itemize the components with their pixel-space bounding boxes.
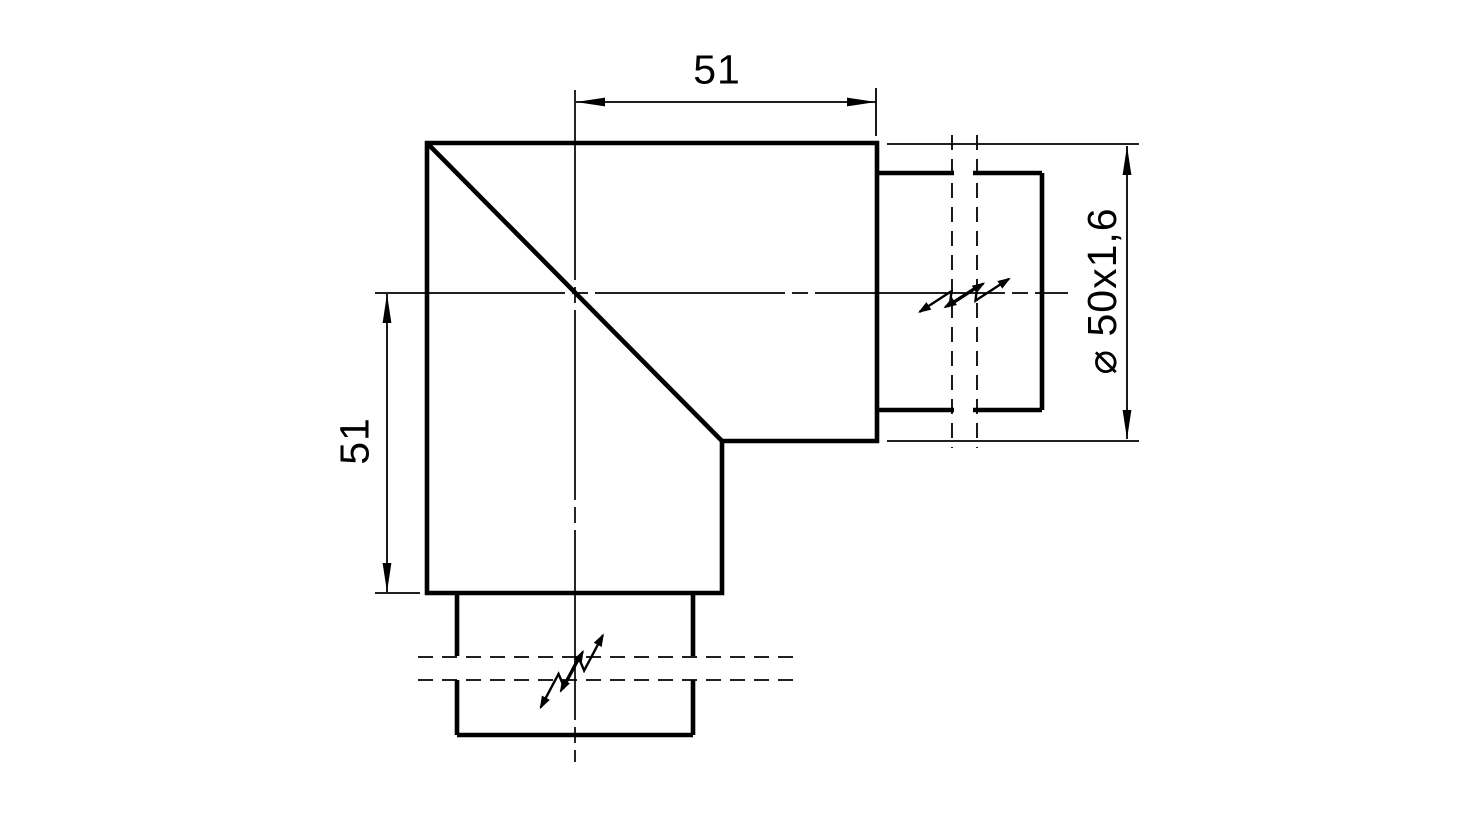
arrowhead-bottom — [383, 563, 392, 592]
arrowhead-top — [1123, 146, 1132, 175]
dimension-left-height-label: 51 — [332, 417, 379, 465]
right-pipe-stub — [877, 173, 1042, 410]
break-symbol-bottom-pipe — [536, 621, 608, 721]
dimension-pipe-diameter-label: ⌀ 50x1,6 — [1078, 207, 1126, 374]
break-symbol-right-pipe — [915, 256, 1013, 334]
dimension-top-width — [576, 88, 876, 136]
break-lines-bottom-pipe — [418, 657, 798, 680]
dimension-top-width-label: 51 — [693, 47, 741, 94]
elbow-fitting-technical-drawing — [0, 0, 1465, 827]
arrowhead-right — [847, 98, 876, 107]
arrowhead-bottom — [1123, 410, 1132, 439]
arrowhead-top — [383, 294, 392, 323]
body-outline — [427, 143, 877, 593]
arrowhead-left — [576, 98, 605, 107]
dimension-left-height — [375, 294, 420, 593]
centerlines — [375, 90, 1068, 762]
drawing-canvas: 51 51 ⌀ 50x1,6 — [0, 0, 1465, 827]
